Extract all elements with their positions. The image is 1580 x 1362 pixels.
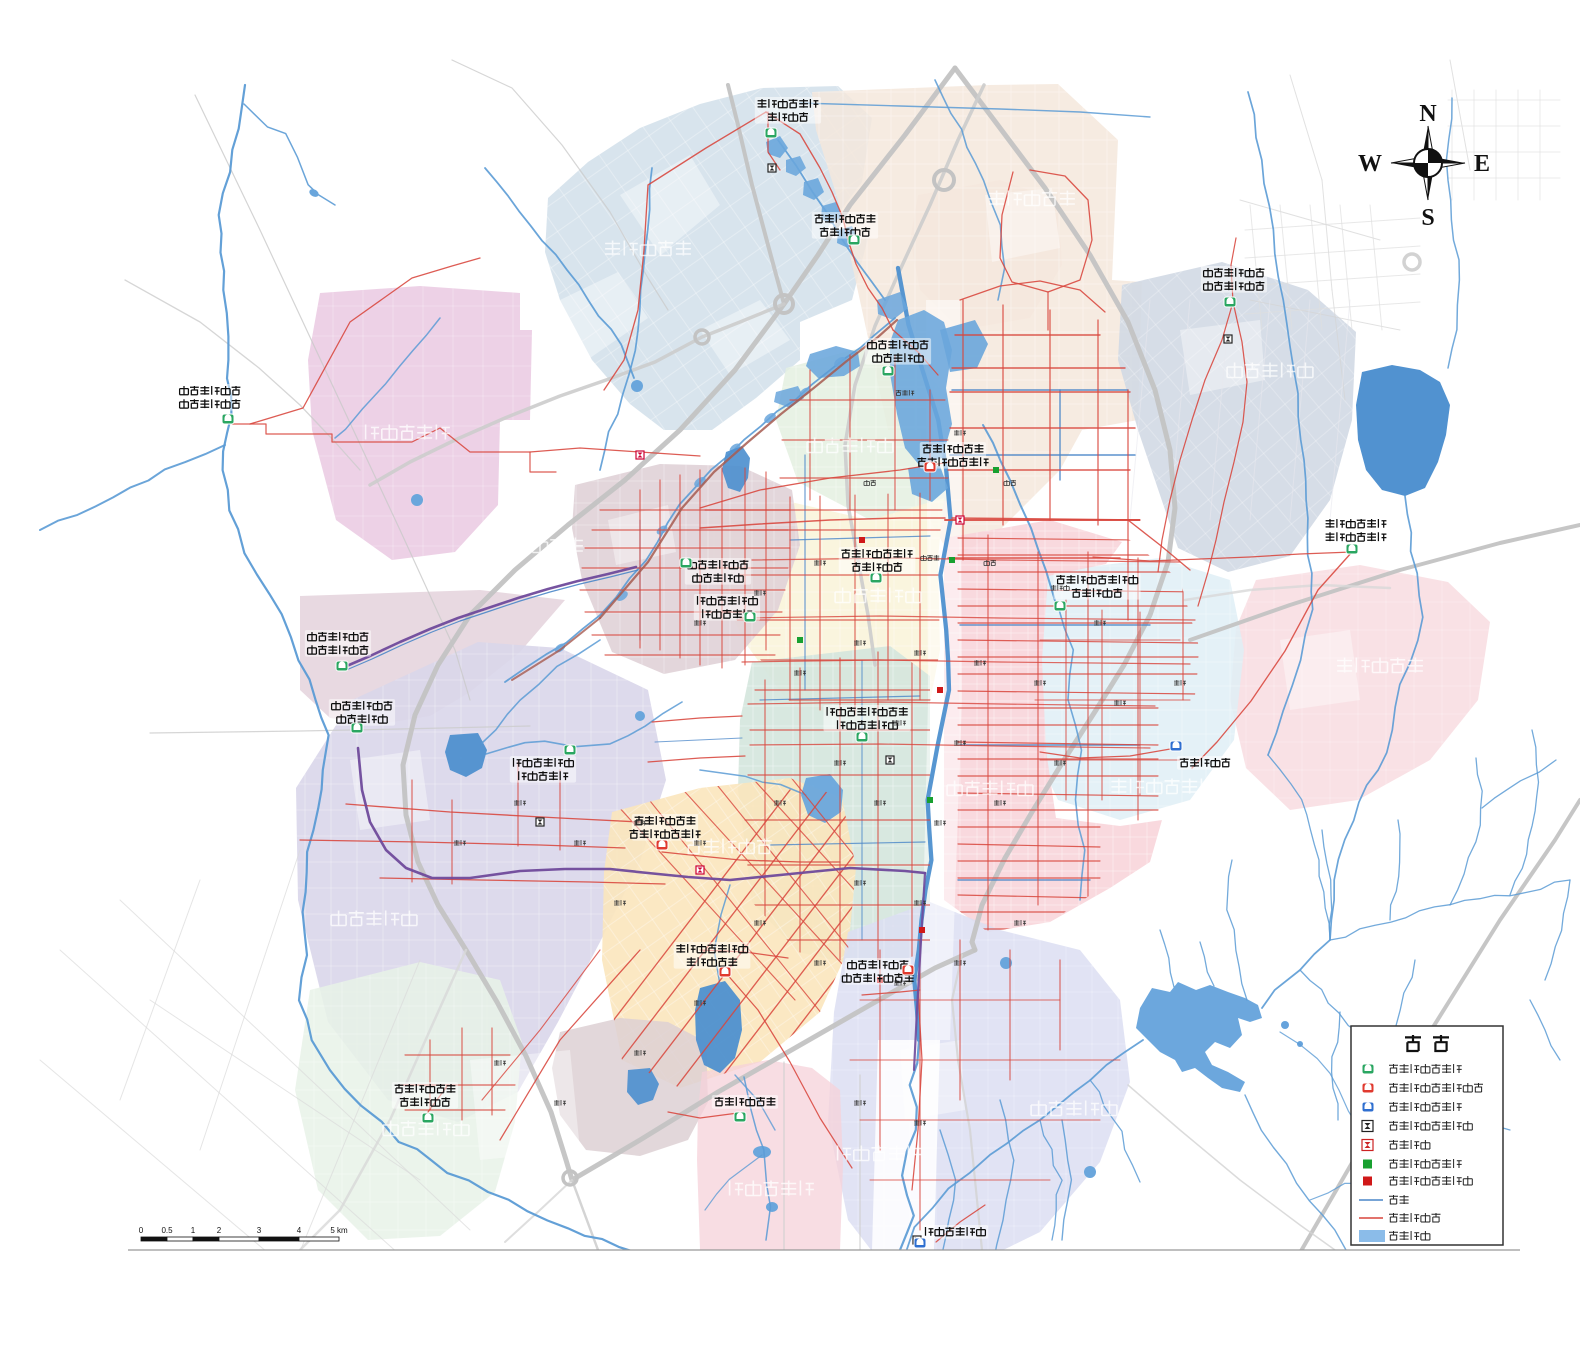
svg-text:E: E <box>1474 151 1490 177</box>
svg-text:0: 0 <box>139 1226 144 1235</box>
svg-text:N: N <box>1419 101 1437 127</box>
svg-text:1: 1 <box>191 1226 196 1235</box>
svg-text:4: 4 <box>297 1226 302 1235</box>
svg-text:S: S <box>1421 205 1434 231</box>
svg-text:2: 2 <box>217 1226 222 1235</box>
svg-text:3: 3 <box>257 1226 262 1235</box>
svg-text:0.5: 0.5 <box>161 1226 173 1235</box>
svg-text:W: W <box>1358 151 1382 177</box>
svg-text:5 km: 5 km <box>330 1226 348 1235</box>
